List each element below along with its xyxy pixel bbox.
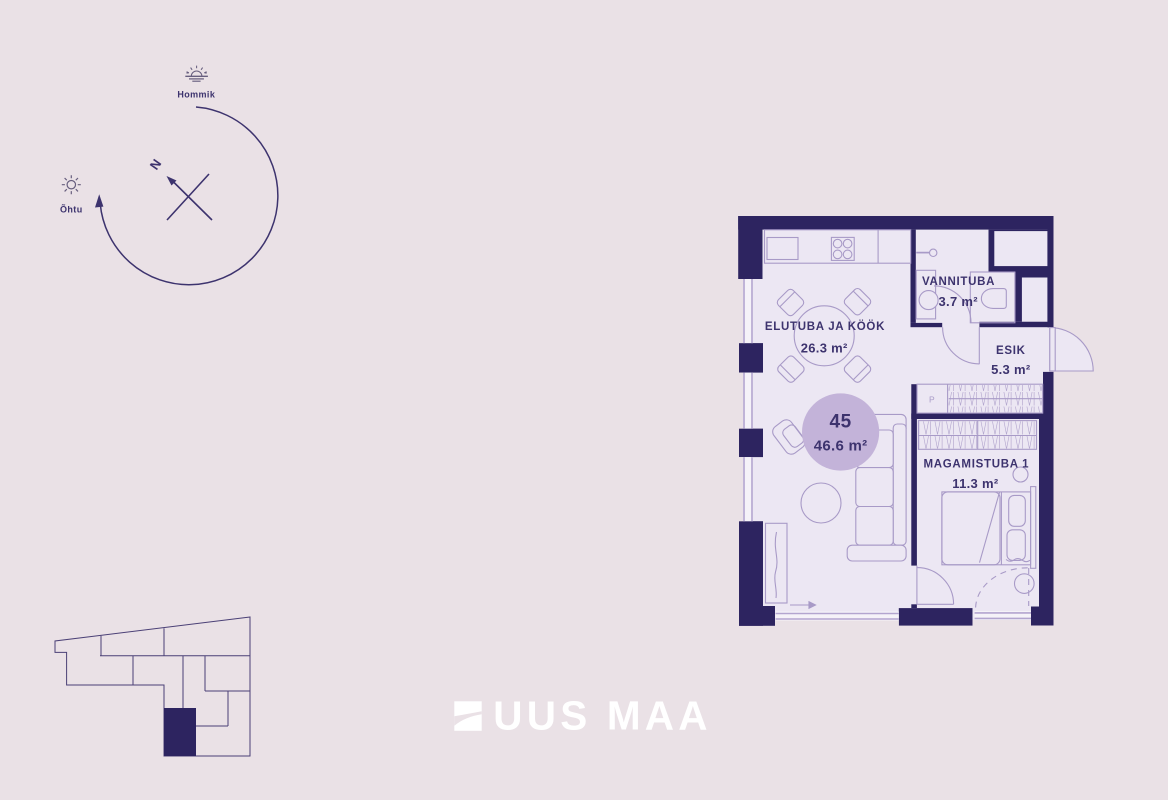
svg-text:MAGAMISTUBA 1: MAGAMISTUBA 1 [924,459,1030,471]
svg-text:VANNITUBA: VANNITUBA [922,276,995,288]
svg-text:ESIK: ESIK [996,345,1026,357]
svg-text:11.3 m²: 11.3 m² [952,476,999,491]
svg-text:46.6 m²: 46.6 m² [814,437,868,454]
svg-text:45: 45 [830,411,852,432]
svg-text:ELUTUBA JA KÖÖK: ELUTUBA JA KÖÖK [765,320,885,333]
svg-text:3.7 m²: 3.7 m² [939,294,979,309]
svg-text:26.3 m²: 26.3 m² [801,340,848,355]
svg-text:5.3 m²: 5.3 m² [991,362,1031,377]
svg-text:Õhtu: Õhtu [60,205,83,215]
svg-text:Hommik: Hommik [177,90,216,100]
svg-text:UUS MAA: UUS MAA [493,693,711,739]
svg-text:P: P [929,395,935,405]
